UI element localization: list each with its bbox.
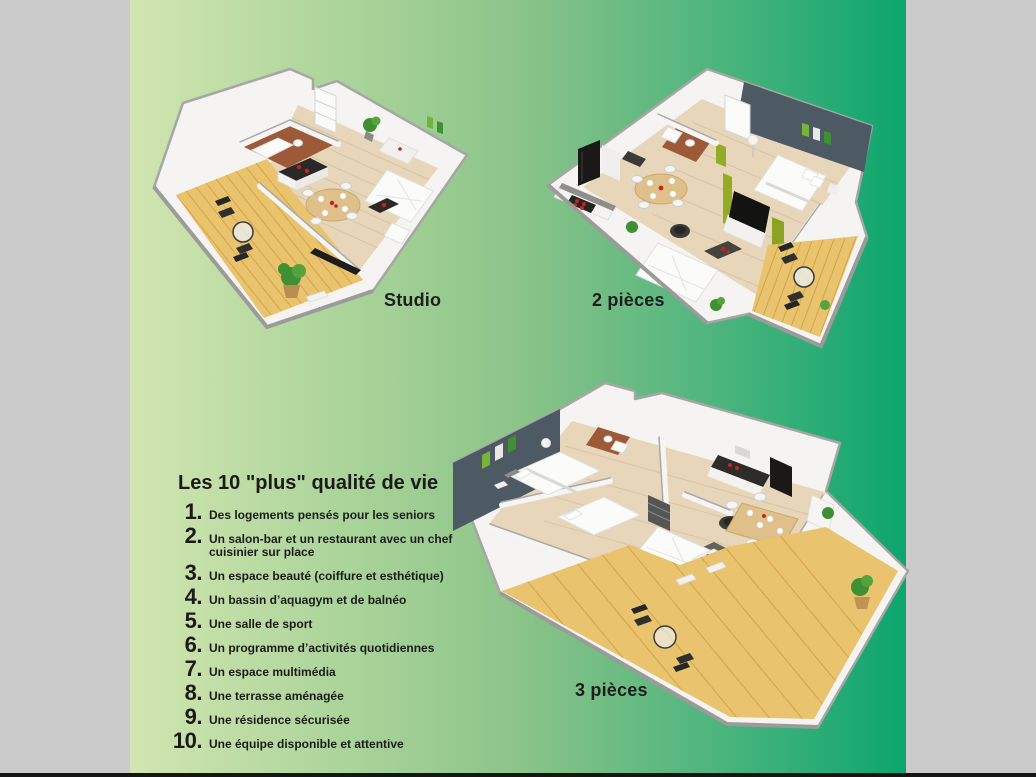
benefit-number: 9. [166, 708, 202, 726]
benefit-text: Un salon-bar et un restaurant avec un ch… [209, 533, 461, 559]
benefit-text: Une salle de sport [209, 618, 312, 631]
benefit-number: 10. [166, 732, 202, 750]
benefit-number: 3. [166, 564, 202, 582]
benefit-text: Un bassin d’aquagym et de balnéo [209, 594, 406, 607]
benefit-text: Un espace beauté (coiffure et esthétique… [209, 570, 444, 583]
floorplan-2-pieces-illustration [520, 55, 920, 365]
benefits-title: Les 10 "plus" qualité de vie [178, 471, 466, 495]
benefit-item-7: 7. Un espace multimédia [166, 660, 466, 679]
benefit-number: 7. [166, 660, 202, 678]
floorplan-3-pieces-label: 3 pièces [575, 680, 648, 701]
benefit-item-10: 10. Une équipe disponible et attentive [166, 732, 466, 751]
benefits-list: Les 10 "plus" qualité de vie 1. Des loge… [166, 471, 466, 756]
benefit-item-6: 6. Un programme d’activités quotidiennes [166, 636, 466, 655]
floorplan-studio-illustration [140, 55, 500, 345]
floorplan-2-pieces [520, 55, 920, 365]
benefit-number: 2. [166, 527, 202, 545]
benefit-item-5: 5. Une salle de sport [166, 612, 466, 631]
benefit-item-1: 1. Des logements pensés pour les seniors [166, 503, 466, 522]
benefit-text: Des logements pensés pour les seniors [209, 509, 435, 522]
studio-wall-art [427, 116, 443, 134]
floorplan-3-pieces-illustration [430, 375, 910, 745]
floorplan-studio [140, 55, 500, 345]
floorplan-studio-label: Studio [384, 290, 441, 311]
benefit-item-9: 9. Une résidence sécurisée [166, 708, 466, 727]
benefit-text: Une résidence sécurisée [209, 714, 350, 727]
bottom-border-bar [0, 773, 1036, 777]
brochure-page: Studio [0, 0, 1036, 777]
benefit-text: Un programme d’activités quotidiennes [209, 642, 434, 655]
benefit-item-4: 4. Un bassin d’aquagym et de balnéo [166, 588, 466, 607]
benefit-text: Une terrasse aménagée [209, 690, 344, 703]
benefit-item-3: 3. Un espace beauté (coiffure et esthéti… [166, 564, 466, 583]
benefit-item-8: 8. Une terrasse aménagée [166, 684, 466, 703]
benefit-number: 1. [166, 503, 202, 521]
benefit-number: 4. [166, 588, 202, 606]
benefit-text: Un espace multimédia [209, 666, 336, 679]
benefit-number: 6. [166, 636, 202, 654]
floorplan-3-pieces [430, 375, 910, 745]
benefit-text: Une équipe disponible et attentive [209, 738, 404, 751]
benefit-number: 5. [166, 612, 202, 630]
floorplan-2-pieces-label: 2 pièces [592, 290, 665, 311]
benefit-number: 8. [166, 684, 202, 702]
benefit-item-2: 2. Un salon-bar et un restaurant avec un… [166, 527, 466, 559]
